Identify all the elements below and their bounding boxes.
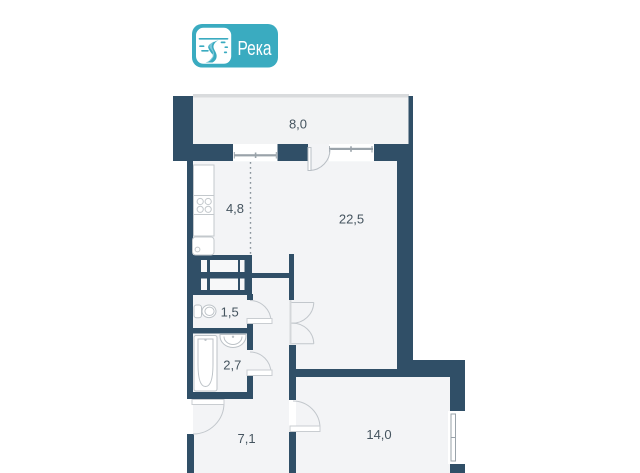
svg-text:7,1: 7,1 [238, 431, 256, 446]
svg-text:2,7: 2,7 [223, 358, 241, 373]
svg-text:Река: Река [238, 38, 273, 60]
svg-text:22,5: 22,5 [339, 212, 364, 227]
svg-text:4,8: 4,8 [226, 201, 244, 216]
svg-text:8,0: 8,0 [289, 117, 307, 132]
svg-text:14,0: 14,0 [366, 427, 391, 442]
svg-text:1,5: 1,5 [221, 305, 239, 320]
